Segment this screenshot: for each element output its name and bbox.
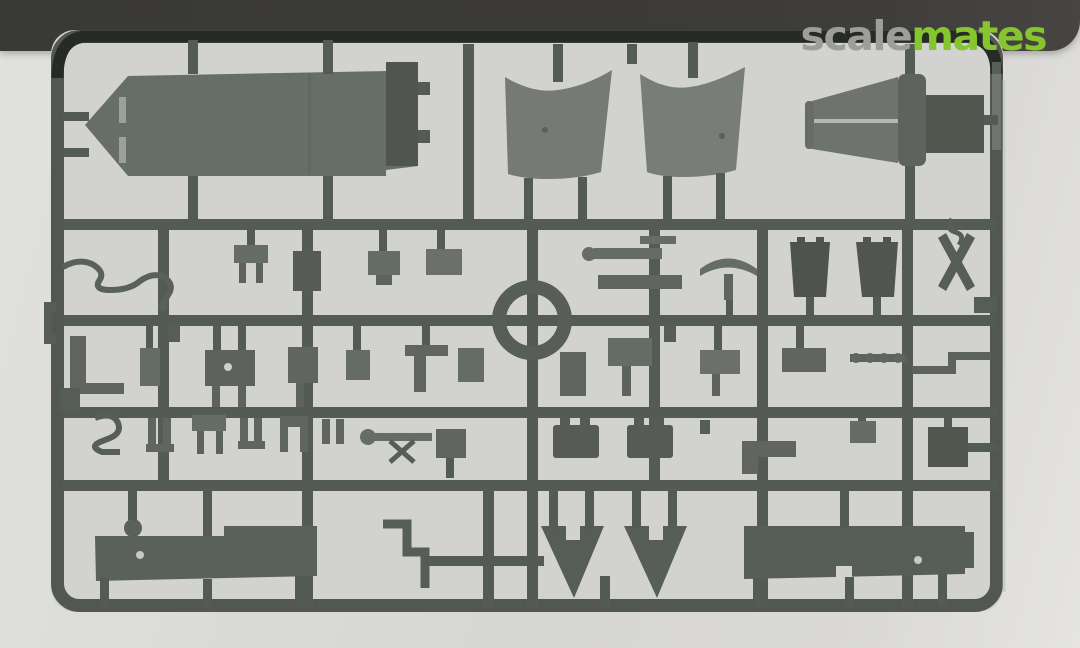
v-stub [323, 40, 333, 74]
v-stub [688, 42, 698, 78]
sprue-part [376, 275, 392, 285]
v-stub [858, 407, 866, 421]
skirt-tab [962, 532, 974, 568]
v-runner [463, 44, 474, 224]
cone-part-block [926, 95, 984, 153]
sprue-part [146, 444, 174, 452]
v-stub [437, 219, 445, 249]
h-stub [984, 115, 998, 125]
v-stub [944, 407, 952, 427]
v-stub [726, 300, 733, 315]
fender-dimple [542, 127, 548, 133]
box-tab [560, 417, 570, 425]
v-stub [600, 576, 610, 608]
sprue-part [280, 416, 308, 427]
sprue-part [782, 348, 826, 372]
hull-end-cap [386, 62, 418, 166]
sprue-part [256, 263, 263, 283]
sprue-part [640, 236, 676, 244]
box-tab [654, 417, 664, 425]
sprue-part [300, 427, 308, 452]
sprue-part [293, 251, 321, 291]
flap-tab [883, 237, 891, 243]
v-stub [188, 40, 198, 74]
sprue-svg [0, 0, 1080, 648]
v-stub [714, 315, 722, 350]
sprue-photo: scalemates [0, 0, 1080, 648]
sprue-part [148, 418, 156, 448]
sprue-part [239, 263, 246, 283]
v-stub [295, 576, 304, 607]
v-stub [100, 578, 109, 607]
v-stub [418, 130, 430, 143]
junction-blob [974, 297, 997, 313]
sprue-part [336, 419, 344, 444]
v-stub [446, 458, 454, 478]
sprue-part [582, 247, 596, 261]
sprue-part [346, 350, 370, 380]
sprue-part [700, 420, 710, 434]
cone-seam [812, 119, 898, 123]
v-stub [753, 578, 762, 607]
sprue [44, 30, 1004, 612]
v-stub [796, 315, 804, 348]
v-stub [188, 176, 198, 223]
v-stub [524, 178, 533, 220]
sprue-part [288, 347, 318, 383]
h-stub [63, 148, 89, 157]
sprue-part [140, 348, 160, 386]
sprue-part [322, 419, 330, 444]
box-part-1 [553, 425, 599, 458]
hatch-flap-part-1 [790, 242, 830, 297]
sprue-part [436, 429, 466, 458]
h-stub [63, 112, 89, 121]
sprue-part [240, 418, 248, 445]
sprue-part [216, 431, 223, 454]
v-stub [938, 574, 947, 606]
ejector-mark [914, 556, 922, 564]
dome-stem [724, 274, 733, 300]
barrel-part-1 [594, 248, 662, 259]
v-stub [203, 579, 212, 607]
sprue-part [163, 418, 171, 448]
scalemates-watermark: scalemates [801, 16, 1046, 57]
skirt-knob [124, 519, 142, 537]
sprue-part [197, 431, 204, 454]
v-stub [353, 315, 361, 350]
sprue-part [700, 350, 740, 374]
flap-tab [816, 237, 824, 243]
wrench-head [360, 429, 376, 445]
barrel-part-2 [598, 275, 682, 289]
sprue-part [622, 366, 631, 396]
v-stub [845, 577, 854, 607]
sprue-part [238, 441, 265, 449]
v-stub [203, 484, 212, 536]
sprue-part [212, 386, 220, 407]
box-part-2 [627, 425, 673, 458]
sprue-part [608, 338, 652, 366]
v-stub [379, 219, 387, 251]
side-skirt-part-2 [744, 526, 965, 579]
sprue-part [234, 245, 268, 263]
knob [851, 353, 861, 363]
v-stub [627, 44, 637, 64]
hull-detail [119, 97, 126, 123]
sprue-part [850, 421, 876, 443]
flap-tab [863, 237, 871, 243]
v-stub [247, 219, 255, 245]
box-tab [580, 417, 590, 425]
sprue-part [192, 415, 226, 431]
hull-panel-line [308, 74, 311, 174]
sprue-part [296, 383, 304, 407]
v-stub [553, 44, 563, 82]
flap-tab [797, 237, 805, 243]
v-stub [873, 297, 881, 315]
v-stub [760, 418, 768, 441]
watermark-prefix: scale [801, 12, 912, 60]
sprue-part [238, 386, 246, 407]
v-stub [840, 484, 849, 528]
sprue-part [664, 326, 676, 342]
wrench-shaft [374, 433, 432, 441]
junction-blob [60, 388, 80, 410]
v-stub [578, 177, 587, 220]
tow-cable-end [158, 301, 168, 311]
v-stub [632, 491, 641, 529]
v-stub [585, 491, 594, 529]
cone-tip [805, 101, 814, 149]
sprue-part [168, 326, 180, 342]
watermark-suffix: mates [911, 12, 1046, 60]
box-part-3 [928, 427, 968, 467]
knob [879, 353, 889, 363]
sprue-part [368, 251, 400, 275]
v-stub [668, 491, 677, 529]
pistol-grip [742, 453, 758, 474]
v-stub [663, 176, 672, 220]
v-stub [806, 297, 814, 315]
v-stub [549, 491, 558, 529]
hull-roof-part [85, 62, 418, 176]
v-stub [146, 315, 153, 348]
sprue-part [426, 249, 462, 275]
sprue-part [280, 427, 288, 452]
v-stub [905, 166, 915, 219]
knob [893, 353, 903, 363]
v-stub [323, 176, 333, 223]
v-runner [483, 488, 494, 608]
fender-dimple [719, 133, 725, 139]
v-stub [422, 315, 430, 345]
ejector-mark [136, 551, 144, 559]
sprue-part [458, 348, 484, 382]
knob [865, 353, 875, 363]
h-stub [968, 443, 998, 452]
hatch-flap-part-2 [856, 242, 898, 297]
v-stub [213, 315, 221, 350]
sprue-part [712, 374, 720, 396]
sprue-part [560, 352, 586, 396]
v-stub [238, 315, 246, 350]
h-stub [424, 556, 544, 566]
v-stub [418, 82, 430, 95]
sprue-part [254, 418, 262, 445]
cone-part-flange [898, 74, 926, 166]
box-tab [634, 417, 644, 425]
v-stub [128, 484, 137, 520]
hull-detail [119, 137, 126, 163]
ejector-mark [224, 363, 232, 371]
v-stub [716, 173, 725, 220]
